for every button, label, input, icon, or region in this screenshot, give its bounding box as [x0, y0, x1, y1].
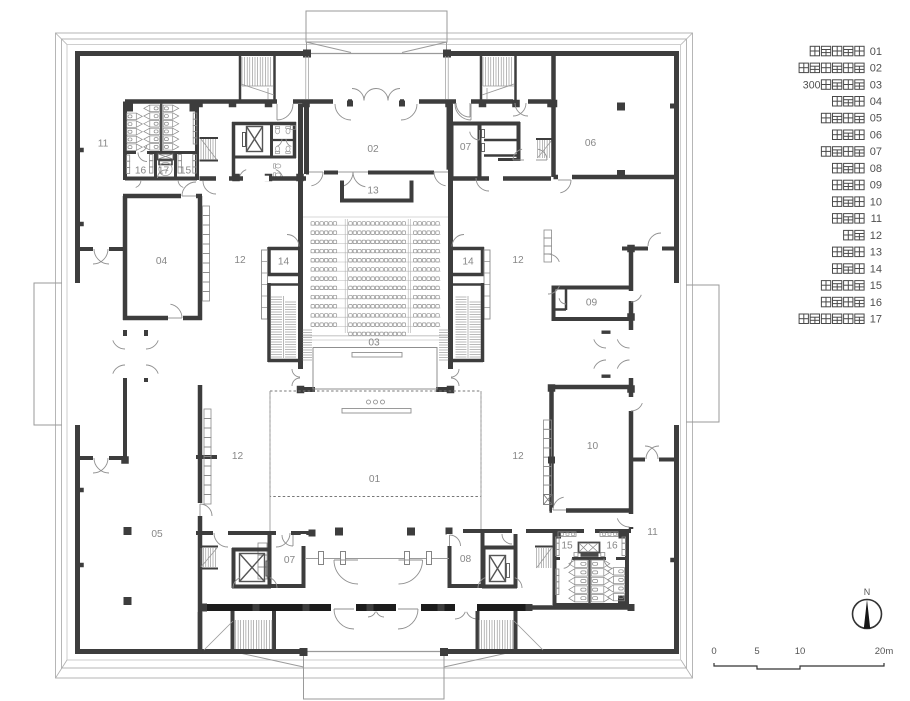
svg-text:08: 08	[870, 163, 882, 175]
svg-text:09: 09	[870, 180, 882, 192]
svg-text:11: 11	[98, 139, 109, 150]
svg-text:01: 01	[369, 474, 381, 485]
svg-text:N: N	[864, 587, 871, 597]
svg-text:15: 15	[561, 541, 573, 552]
svg-text:09: 09	[586, 298, 598, 309]
svg-text:12: 12	[232, 451, 244, 462]
svg-text:12: 12	[512, 255, 524, 266]
svg-text:04: 04	[870, 96, 882, 108]
svg-text:12: 12	[870, 230, 882, 242]
svg-text:5: 5	[754, 646, 759, 657]
svg-text:13: 13	[870, 247, 882, 259]
svg-text:12: 12	[234, 255, 246, 266]
svg-text:05: 05	[870, 113, 882, 125]
svg-text:11: 11	[647, 527, 658, 538]
svg-text:15: 15	[870, 280, 882, 292]
svg-text:20m: 20m	[875, 646, 894, 657]
svg-text:07: 07	[870, 146, 882, 158]
svg-text:02: 02	[367, 144, 379, 155]
svg-text:06: 06	[585, 138, 597, 149]
svg-text:06: 06	[870, 130, 882, 142]
svg-text:16: 16	[870, 297, 882, 309]
svg-text:300: 300	[803, 79, 821, 91]
svg-text:01: 01	[870, 46, 882, 58]
svg-text:13: 13	[367, 186, 379, 197]
svg-text:17: 17	[870, 314, 882, 326]
svg-text:03: 03	[368, 338, 380, 349]
svg-text:05: 05	[151, 529, 163, 540]
svg-text:14: 14	[278, 257, 290, 268]
svg-text:16: 16	[135, 166, 147, 177]
svg-text:14: 14	[462, 257, 474, 268]
svg-text:03: 03	[870, 79, 882, 91]
svg-text:08: 08	[460, 554, 472, 565]
svg-text:02: 02	[870, 63, 882, 75]
svg-text:16: 16	[606, 541, 618, 552]
svg-text:17: 17	[158, 166, 170, 177]
svg-text:07: 07	[460, 142, 472, 153]
svg-text:10: 10	[795, 646, 806, 657]
svg-text:10: 10	[870, 196, 882, 208]
svg-text:14: 14	[870, 263, 882, 275]
svg-text:04: 04	[156, 256, 168, 267]
svg-text:12: 12	[512, 451, 524, 462]
svg-text:0: 0	[711, 646, 716, 657]
svg-text:11: 11	[871, 213, 882, 225]
svg-text:10: 10	[587, 441, 599, 452]
svg-text:15: 15	[180, 166, 192, 177]
svg-text:07: 07	[284, 555, 296, 566]
